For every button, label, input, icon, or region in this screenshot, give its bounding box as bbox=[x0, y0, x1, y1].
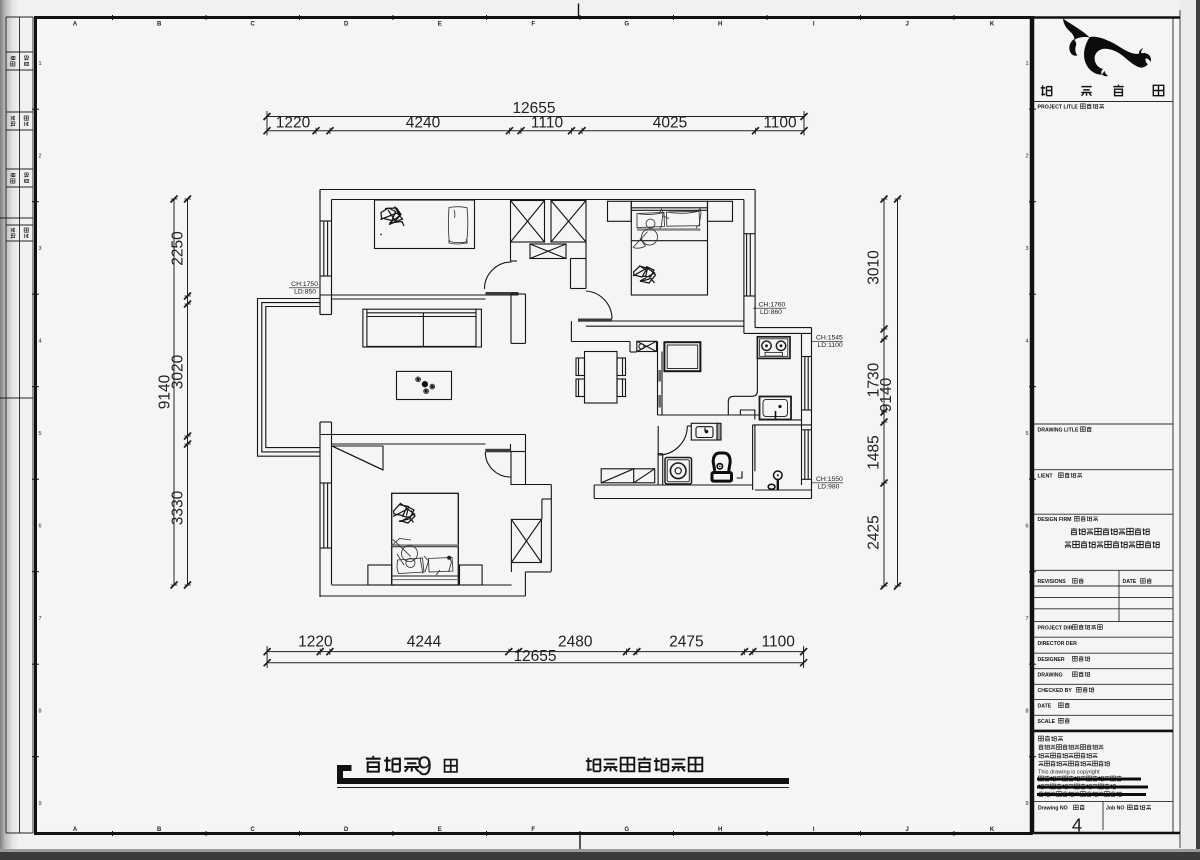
svg-text:9: 9 bbox=[1025, 801, 1028, 807]
svg-text:9140: 9140 bbox=[878, 377, 895, 412]
svg-text:LD:860: LD:860 bbox=[760, 309, 782, 316]
svg-text:LIENT: LIENT bbox=[1038, 474, 1054, 480]
svg-text:This drawing is copyright: This drawing is copyright bbox=[1038, 770, 1100, 776]
svg-text:6: 6 bbox=[38, 524, 41, 530]
svg-text:7: 7 bbox=[38, 616, 41, 622]
svg-text:F: F bbox=[531, 22, 535, 28]
svg-text:2475: 2475 bbox=[669, 634, 703, 651]
svg-text:D: D bbox=[344, 827, 349, 833]
svg-text:REVISIONS: REVISIONS bbox=[1038, 579, 1067, 585]
svg-text:5: 5 bbox=[38, 431, 41, 437]
svg-text:CH:1545: CH:1545 bbox=[816, 335, 843, 342]
svg-text:F: F bbox=[531, 827, 535, 833]
svg-text:CHECKED BY: CHECKED BY bbox=[1038, 688, 1073, 694]
svg-text:CH:1550: CH:1550 bbox=[816, 476, 843, 483]
svg-text:1220: 1220 bbox=[276, 114, 311, 131]
svg-text:2: 2 bbox=[1025, 154, 1028, 160]
svg-text:2480: 2480 bbox=[558, 634, 593, 651]
svg-text:PROJECT LITLE: PROJECT LITLE bbox=[1038, 105, 1079, 111]
svg-text:J: J bbox=[906, 827, 909, 833]
svg-text:2: 2 bbox=[38, 154, 41, 160]
svg-text:4240: 4240 bbox=[406, 114, 441, 131]
svg-text:CH:1750: CH:1750 bbox=[291, 281, 318, 288]
svg-text:C: C bbox=[251, 827, 256, 833]
svg-text:1: 1 bbox=[38, 61, 41, 67]
svg-text:A: A bbox=[73, 22, 78, 28]
svg-text:E: E bbox=[438, 827, 442, 833]
svg-text:4244: 4244 bbox=[407, 634, 442, 651]
svg-text:3: 3 bbox=[1025, 246, 1028, 252]
svg-text:DIRECTOR DER: DIRECTOR DER bbox=[1038, 641, 1078, 647]
svg-text:3010: 3010 bbox=[866, 250, 883, 285]
svg-text:DESIGNER: DESIGNER bbox=[1038, 657, 1065, 663]
svg-text:1220: 1220 bbox=[298, 634, 333, 651]
svg-text:4: 4 bbox=[1072, 815, 1082, 836]
svg-text:6: 6 bbox=[1025, 524, 1028, 530]
svg-text:DATE: DATE bbox=[1038, 704, 1052, 710]
svg-text:5: 5 bbox=[1025, 431, 1028, 437]
svg-text:E: E bbox=[438, 22, 442, 28]
svg-text:K: K bbox=[990, 827, 995, 833]
svg-text:4025: 4025 bbox=[653, 114, 687, 131]
svg-text:1485: 1485 bbox=[866, 435, 883, 469]
svg-text:9: 9 bbox=[38, 801, 41, 807]
svg-text:8: 8 bbox=[38, 709, 41, 715]
svg-text:1100: 1100 bbox=[763, 114, 797, 131]
svg-text:DRAWING: DRAWING bbox=[1038, 673, 1063, 679]
svg-text:DATE: DATE bbox=[1123, 579, 1137, 585]
svg-text:PROJECT DIR: PROJECT DIR bbox=[1038, 625, 1073, 631]
svg-text:C: C bbox=[251, 22, 256, 28]
svg-text:Drawing NO: Drawing NO bbox=[1038, 806, 1068, 812]
svg-text:H: H bbox=[718, 22, 722, 28]
svg-text:SCALE: SCALE bbox=[1038, 719, 1056, 725]
svg-text:DESIGN FIRM: DESIGN FIRM bbox=[1038, 517, 1072, 523]
svg-text:9: 9 bbox=[417, 751, 432, 781]
svg-text:G: G bbox=[624, 827, 629, 833]
svg-text:K: K bbox=[990, 22, 995, 28]
svg-text:D: D bbox=[344, 22, 349, 28]
svg-text:B: B bbox=[157, 22, 162, 28]
svg-text:CH:1760: CH:1760 bbox=[759, 302, 786, 309]
svg-text:4: 4 bbox=[38, 339, 41, 345]
svg-text:H: H bbox=[718, 827, 722, 833]
svg-text:LD:850: LD:850 bbox=[294, 289, 316, 296]
svg-text:DRAWING LITLE: DRAWING LITLE bbox=[1038, 428, 1079, 434]
svg-text:3330: 3330 bbox=[170, 490, 187, 525]
svg-text:2425: 2425 bbox=[866, 515, 883, 549]
svg-text:1: 1 bbox=[1025, 61, 1028, 67]
svg-text:J: J bbox=[906, 22, 909, 28]
svg-text:G: G bbox=[624, 22, 629, 28]
svg-text:3: 3 bbox=[38, 246, 41, 252]
svg-text:1100: 1100 bbox=[762, 634, 796, 651]
svg-text:8: 8 bbox=[1025, 709, 1028, 715]
svg-text:3020: 3020 bbox=[170, 354, 187, 389]
svg-text:B: B bbox=[157, 827, 162, 833]
svg-text:LD:980: LD:980 bbox=[818, 484, 840, 491]
svg-text:12655: 12655 bbox=[513, 648, 556, 665]
svg-text:1110: 1110 bbox=[531, 114, 564, 131]
svg-text:LD:1100: LD:1100 bbox=[818, 342, 843, 349]
svg-text:7: 7 bbox=[1025, 616, 1028, 622]
svg-text:A: A bbox=[73, 827, 78, 833]
svg-text:4: 4 bbox=[1025, 339, 1028, 345]
svg-text:Job NO: Job NO bbox=[1106, 806, 1124, 812]
svg-text:2250: 2250 bbox=[170, 231, 187, 266]
